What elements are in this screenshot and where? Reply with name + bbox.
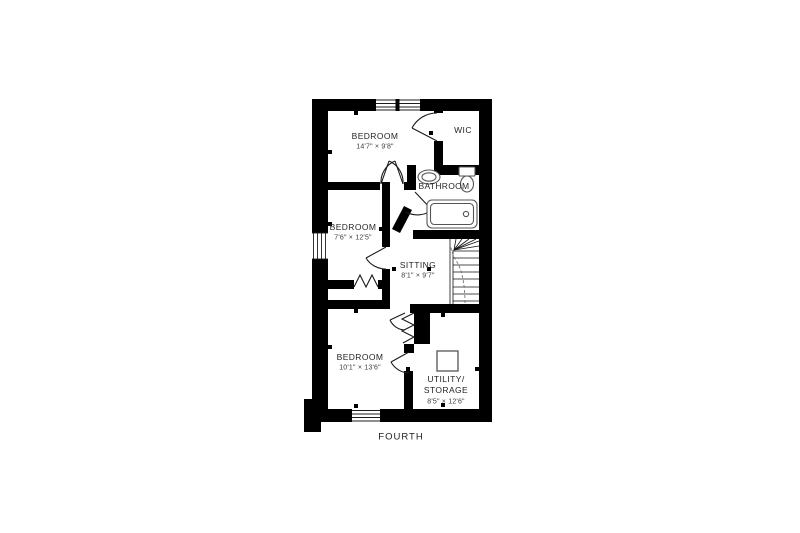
wall-tick — [354, 111, 358, 115]
label-bedroom-top-dims: 14'7" × 9'8" — [356, 144, 394, 151]
wall-bedroom-top-bottom-left — [328, 182, 380, 190]
label-sitting-name: SITTING — [400, 261, 436, 270]
wall-tick — [328, 345, 332, 349]
label-bedroom-bottom-name: BEDROOM — [337, 353, 384, 362]
window-mullion — [396, 99, 400, 111]
label-utility-dims: 8'5" × 12'6" — [427, 399, 465, 406]
wall-bedroom-mid-bottom-right — [378, 280, 390, 289]
label-wic-name: WIC — [454, 126, 472, 135]
bathtub-icon — [427, 200, 477, 228]
wall-corner-block — [304, 399, 321, 432]
window-left — [312, 233, 328, 259]
door-wic — [412, 113, 437, 141]
label-utility-name-line1: UTILITY/ — [427, 375, 464, 384]
wall-wic-left-upper — [434, 99, 443, 113]
door-bedroom-top — [381, 161, 403, 184]
stair-winders — [454, 239, 479, 250]
bifold-door-closet — [354, 275, 378, 287]
label-bedroom-mid-name: BEDROOM — [330, 223, 377, 232]
wall-tick — [344, 183, 348, 187]
label-utility-name-line2: STORAGE — [424, 386, 468, 395]
wall-tick — [429, 131, 433, 135]
wall-tick — [328, 150, 332, 154]
stair-treads — [453, 251, 479, 301]
wall-utility-top — [410, 304, 479, 313]
wall-tick — [379, 227, 383, 231]
wall-tick — [441, 313, 445, 317]
wall-closet-bottom — [328, 300, 390, 309]
accordion-door-utility — [402, 313, 414, 343]
wall-bottom — [312, 409, 492, 422]
wall-left — [312, 99, 328, 422]
floor-title: FOURTH — [378, 432, 423, 442]
door-sitting-passage — [390, 313, 405, 330]
wall-bathroom-diagonal — [392, 206, 412, 233]
wall-bedroom-utility-divider — [404, 371, 413, 409]
floor-plan-page: BEDROOM 14'7" × 9'8" WIC BATHROOM BEDROO… — [0, 0, 800, 533]
wall-bathroom-left — [407, 165, 416, 190]
wall-right — [479, 99, 492, 422]
wall-bedroom-mid-bottom-left — [328, 280, 354, 289]
door-bedroom-mid — [366, 247, 386, 269]
label-bedroom-top-name: BEDROOM — [352, 132, 399, 141]
label-bathroom-name: BATHROOM — [419, 182, 470, 191]
window-top — [376, 99, 420, 111]
window-bottom — [352, 409, 380, 422]
bathroom-fixtures — [418, 167, 477, 228]
wall-tick — [475, 367, 479, 371]
staircase — [450, 239, 479, 304]
wall-utility-chase — [414, 313, 430, 344]
wall-bathroom-bottom — [413, 230, 479, 239]
label-bedroom-mid-dims: 7'6" × 12'5" — [334, 235, 372, 242]
wall-tick — [392, 267, 396, 271]
appliance-square-icon — [437, 351, 458, 371]
wall-door-jamb-stub — [404, 344, 414, 353]
label-sitting-dims: 8'1" × 9'7" — [401, 273, 434, 280]
wall-tick — [354, 309, 358, 313]
wall-central-upper — [382, 182, 390, 247]
wall-tick — [354, 404, 358, 408]
label-bedroom-bottom-dims: 10'1" × 13'6" — [339, 365, 381, 372]
wall-tick — [406, 367, 410, 371]
